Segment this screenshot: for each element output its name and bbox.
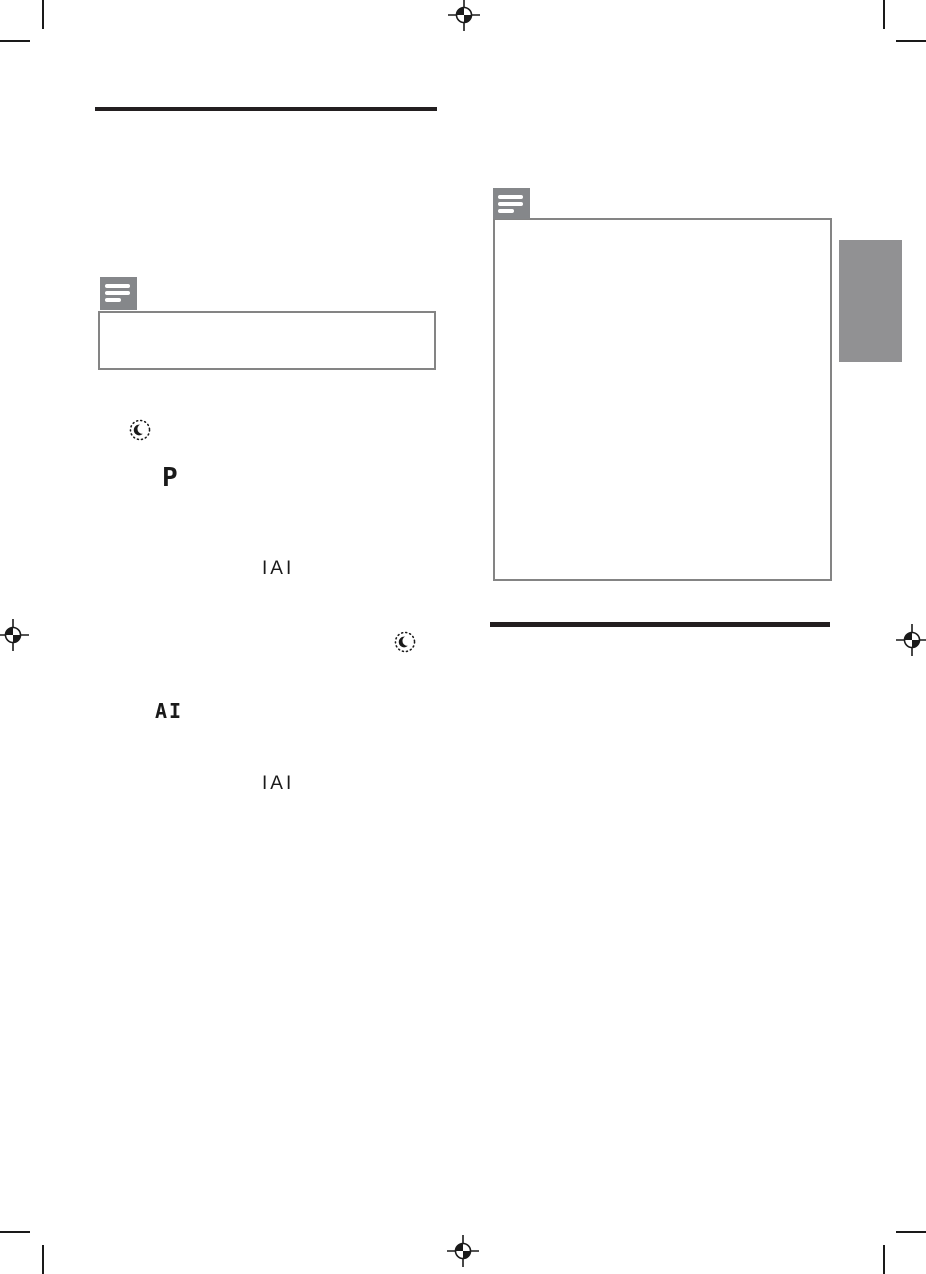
- sleep-timer-icon: [129, 419, 151, 441]
- crop-tick-top-right-horizontal: [896, 40, 926, 42]
- crop-tick-bottom-left-horizontal: [0, 1231, 30, 1233]
- crop-tick-top-right-vertical: [883, 0, 885, 29]
- section-heading-rule-left: [95, 107, 437, 111]
- registration-mark-icon: [896, 624, 926, 656]
- crop-tick-bottom-left-vertical: [42, 1245, 44, 1274]
- note-callout-box-left: [98, 311, 436, 370]
- registration-mark-icon: [448, 0, 480, 31]
- section-heading-rule-right: [490, 622, 830, 627]
- display-text-iai: IAI: [262, 774, 294, 793]
- crop-tick-top-left-horizontal: [0, 40, 30, 42]
- registration-mark-icon: [0, 619, 29, 651]
- crop-tick-bottom-right-horizontal: [896, 1231, 926, 1233]
- note-icon: [100, 277, 137, 310]
- sleep-timer-icon: [394, 631, 416, 653]
- crop-tick-top-left-vertical: [42, 0, 44, 29]
- crop-tick-bottom-right-vertical: [883, 1245, 885, 1274]
- chapter-thumb-tab: [839, 240, 902, 362]
- display-glyph-p: P: [162, 465, 178, 491]
- registration-mark-icon: [447, 1235, 479, 1267]
- display-glyph-ai: AI: [155, 701, 183, 721]
- note-icon: [493, 188, 530, 219]
- display-text-iai: IAI: [262, 559, 294, 578]
- manual-page: P IAI AI IAI: [0, 0, 926, 1274]
- note-callout-box-right: [493, 218, 832, 581]
